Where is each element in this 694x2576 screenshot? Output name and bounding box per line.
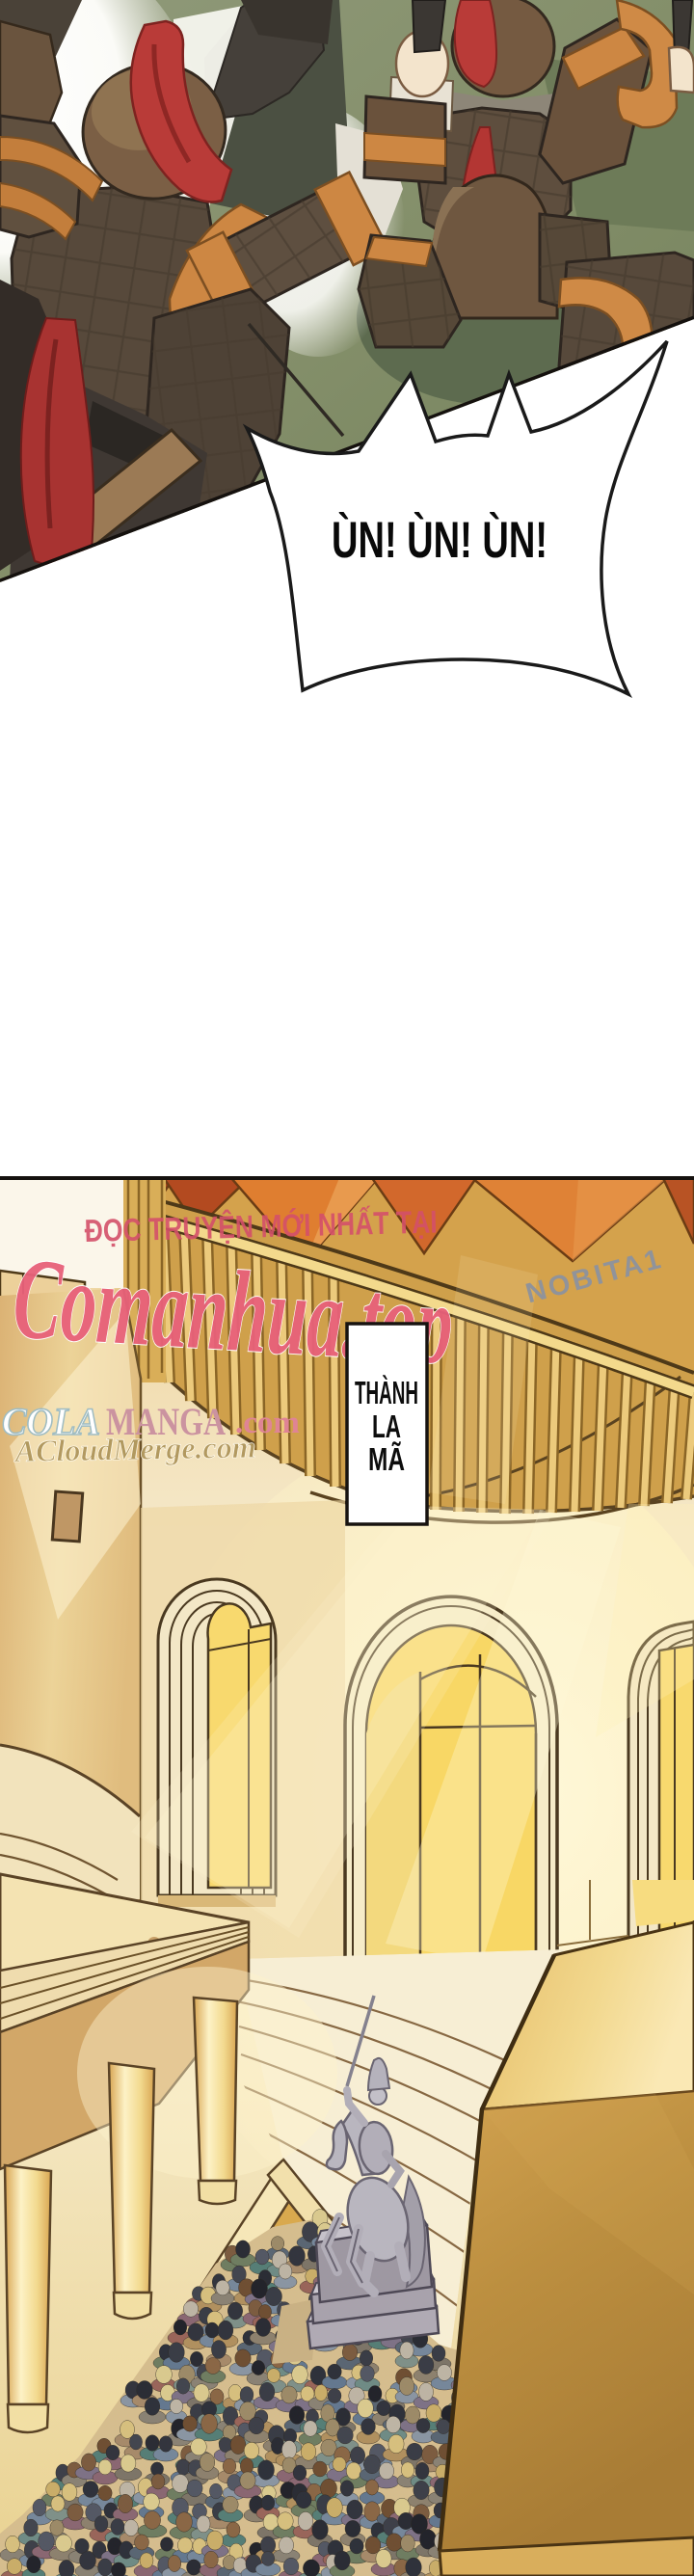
svg-text:THÀNH: THÀNH — [355, 1375, 418, 1410]
svg-text:LA: LA — [372, 1409, 401, 1444]
svg-text:MÃ: MÃ — [368, 1441, 405, 1477]
svg-text:ACloudMerge.com: ACloudMerge.com — [13, 1430, 255, 1468]
svg-text:ÙN! ÙN! ÙN!: ÙN! ÙN! ÙN! — [332, 511, 547, 569]
